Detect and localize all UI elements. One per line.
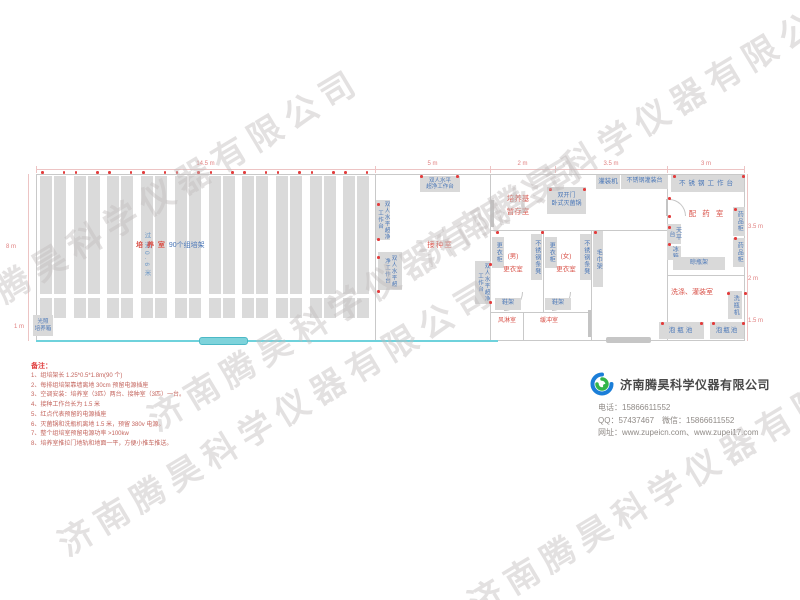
wall [591,230,592,340]
shoe-rack-label: 鞋架 [502,300,514,308]
bottle-washer: 洗瓶机 [728,291,742,319]
socket-dot [96,171,99,174]
door-leaf [666,199,668,216]
watermark-text: 济南腾昊科学仪器有限公司 [457,324,800,600]
dim-label-dispensing: 3 m [667,160,745,168]
socket-dot [75,171,78,174]
culture-rack-count-label: 90个组培架 [169,242,205,249]
incubator-label-2: 培养箱 [35,326,52,333]
laminar-bench-left-lower: 双人水平超净工作台 [378,252,402,290]
socket-dot [496,231,499,234]
culture-room-label: 培 养 室90个组培架 [136,240,205,250]
socket-dot [727,292,730,295]
ss-worktable-label: 不锈钢工作台 [679,180,736,188]
socket-dot [366,171,369,174]
socket-dot [377,203,380,206]
buffer-room-label: 缓冲室 [533,317,565,326]
culture-rack [242,176,268,318]
socket-dot [541,231,544,234]
male-label-2: 更衣室 [503,266,523,273]
stool-label: 不锈钢条凳 [582,240,589,275]
socket-dot [298,171,301,174]
socket-dot [210,171,213,174]
shoe-rack-label: 鞋架 [552,300,564,308]
socket-dot [700,322,703,325]
female-label-1: (女) [561,253,572,260]
culture-front-wall [36,340,498,342]
bench-label: 双人水平超净工作台 [377,200,390,240]
bench-label: 双人水平超净工作台 [384,252,397,290]
male-label-1: (男) [508,253,519,260]
medicine-cabinet-2: 药品柜 [733,238,745,267]
wall [523,312,524,340]
socket-dot [742,322,745,325]
socket-dot [734,237,737,240]
culture-rack [74,176,100,318]
company-phone: 电话：15866611552 [598,402,770,415]
soak-pool-2: 泡瓶池 [710,322,744,339]
filling-machine: 灌装机 [596,175,620,189]
dispensing-room-label: 配 药 室 [686,209,728,218]
socket-dot [231,171,234,174]
note-item: 4、接种工作台长为 1.5 米 [31,401,185,411]
female-dressing-label: (女) 更衣室 [549,250,583,276]
note-item: 2、每排组培架靠墙离地 30cm 预留电源插座 [31,382,185,392]
laminar-bench-bottom: 双人水平超净工作台 [475,261,491,304]
socket-dot [377,238,380,241]
socket-dot [377,290,380,293]
medicine-cabinet-label: 药品柜 [736,211,743,232]
washing-room-label: 洗涤、灌装室 [664,288,720,297]
stool-label: 不锈钢条凳 [533,240,540,275]
note-item: 7、整个组培室预留电源功率 >100kw [31,430,185,440]
ss-stool-male: 不锈钢条凳 [531,234,542,280]
filling-machine-label: 灌装机 [598,178,618,186]
socket-dot [583,188,586,191]
socket-dot [742,175,745,178]
air-shower-label: 风淋室 [492,317,522,326]
floorplan-canvas: 济南腾昊科学仪器有限公司 济南腾昊科学仪器有限公司 济南腾昊科学仪器有限公司 济… [0,0,800,600]
socket-dot [489,301,492,304]
culture-room-name: 培 养 室 [136,242,166,249]
socket-dot [668,197,671,200]
dimension-line [36,169,745,170]
soak-pool-label: 泡瓶池 [669,327,695,335]
dim-label-right-2: 2 m [748,276,758,282]
dim-label-right-1: 3.5 m [748,224,763,230]
company-logo-icon [590,372,614,396]
socket-dot [332,171,335,174]
socket-dot [243,171,246,174]
wall [543,230,544,312]
ss-stool-female: 不锈钢条凳 [580,234,591,280]
culture-rack [343,176,369,318]
socket-dot [344,171,347,174]
sterilizer-box: 双开门 卧式灭菌锅 [547,187,586,214]
bottle-dry-rack-label: 晾瓶架 [690,260,708,268]
company-website: 网址：www.zupeicn.com、www.zupei17.com [598,427,770,440]
socket-dot [265,171,268,174]
towel-rack-label: 毛巾架 [595,249,602,270]
culture-rack [310,176,336,318]
female-label-2: 更衣室 [556,266,576,273]
wall [667,275,745,276]
ss-worktable: 不锈钢工作台 [671,175,744,192]
dim-label-culture: 14.5 m [36,160,375,168]
culture-rack [276,176,302,318]
bench-label: 双人水平超净工作台 [477,261,490,304]
dimension-line [747,174,748,341]
socket-dot [197,171,200,174]
socket-dot [108,171,111,174]
sliding-door-bottom [606,337,651,343]
culture-rack [209,176,235,318]
socket-dot [734,208,737,211]
wall [490,174,491,340]
wall [490,230,667,231]
culture-rack [40,176,66,318]
laminar-bench-top: 双人水平 超净工作台 [420,176,460,192]
socket-dot [377,256,380,259]
bottle-washer-label: 洗瓶机 [732,295,739,316]
medium-storage-label: 培养基 暂存室 [501,192,535,218]
socket-dot [661,322,664,325]
medium-storage-l2: 暂存室 [507,207,530,216]
company-block: 济南腾昊科学仪器有限公司 电话：15866611552 QQ：57437467 … [590,372,770,440]
notes-block: 备注： 1、组培架长 1.25*0.5*1.8m(90 个) 2、每排组培架靠墙… [31,361,185,450]
laminar-bench-left-upper: 双人水平超净工作台 [376,200,390,240]
socket-dot [176,171,179,174]
dim-label-left-height: 8 m [6,244,16,250]
dim-label-storage: 2 m [490,160,555,168]
socket-dot [489,263,492,266]
shoe-rack-female: 鞋架 [545,298,571,310]
socket-dot [712,322,715,325]
light-incubator-box: 光照 培养箱 [33,315,53,336]
soak-pool-1: 泡瓶池 [659,322,704,339]
note-item: 8、培养室推拉门地轨和地面一平，方便小推车推送。 [31,440,185,450]
ss-filling-table: 不锈钢灌装台 [621,175,668,189]
medicine-cabinet-label: 药品柜 [736,242,743,263]
male-dressing-label: (男) 更衣室 [496,250,530,276]
wall [375,174,376,340]
bench-label-2: 超净工作台 [426,184,454,191]
notes-title: 备注： [31,361,185,372]
company-qq-wechat: QQ：57437467 微信：15866611552 [598,415,770,428]
sliding-door [199,337,248,345]
ss-filling-table-label: 不锈钢灌装台 [626,178,662,186]
door-arc [669,199,686,216]
inoculation-room-label: 接种室 [415,240,465,249]
towel-rack: 毛巾架 [593,231,603,287]
culture-rack [107,176,133,318]
note-item: 3、空调安装：培养室（3匹）两台、接种室（3匹）一台。 [31,391,185,401]
dim-label-inoculation: 5 m [375,160,490,168]
socket-dot [673,175,676,178]
socket-dot [311,171,314,174]
socket-dot [594,231,597,234]
medicine-cabinet-1: 药品柜 [733,207,745,236]
wall [490,312,591,313]
shoe-rack-male: 鞋架 [495,298,521,310]
dim-label-right-3: 1.5 m [748,318,763,324]
door-leaf [491,200,494,227]
note-item: 5、红点代表预留的电源插座 [31,411,185,421]
socket-dot [63,171,66,174]
medium-storage-l1: 培养基 [507,194,530,203]
socket-dot [668,215,671,218]
socket-dot [668,226,671,229]
socket-dot [456,175,459,178]
door-leaf [588,310,591,337]
dim-label-left-small: 1 m [14,324,24,330]
sterilizer-label-2: 卧式灭菌锅 [551,201,581,209]
note-item: 6、灭菌锅和洗瓶机离地 1.5 米，预留 380v 电源。 [31,421,185,431]
company-name: 济南腾昊科学仪器有限公司 [620,376,770,393]
sterilizer-label-1: 双开门 [557,193,575,201]
socket-dot [549,188,552,191]
bottle-dry-rack: 晾瓶架 [673,257,725,270]
dimension-line [28,174,29,341]
socket-dot [420,175,423,178]
note-item: 1、组培架长 1.25*0.5*1.8m(90 个) [31,372,185,382]
socket-dot [744,292,747,295]
socket-dot [668,243,671,246]
socket-dot [164,171,167,174]
socket-dot [41,171,44,174]
dim-label-filling: 3.5 m [555,160,667,168]
socket-dot [142,171,145,174]
soak-pool-label: 泡瓶池 [716,327,739,335]
